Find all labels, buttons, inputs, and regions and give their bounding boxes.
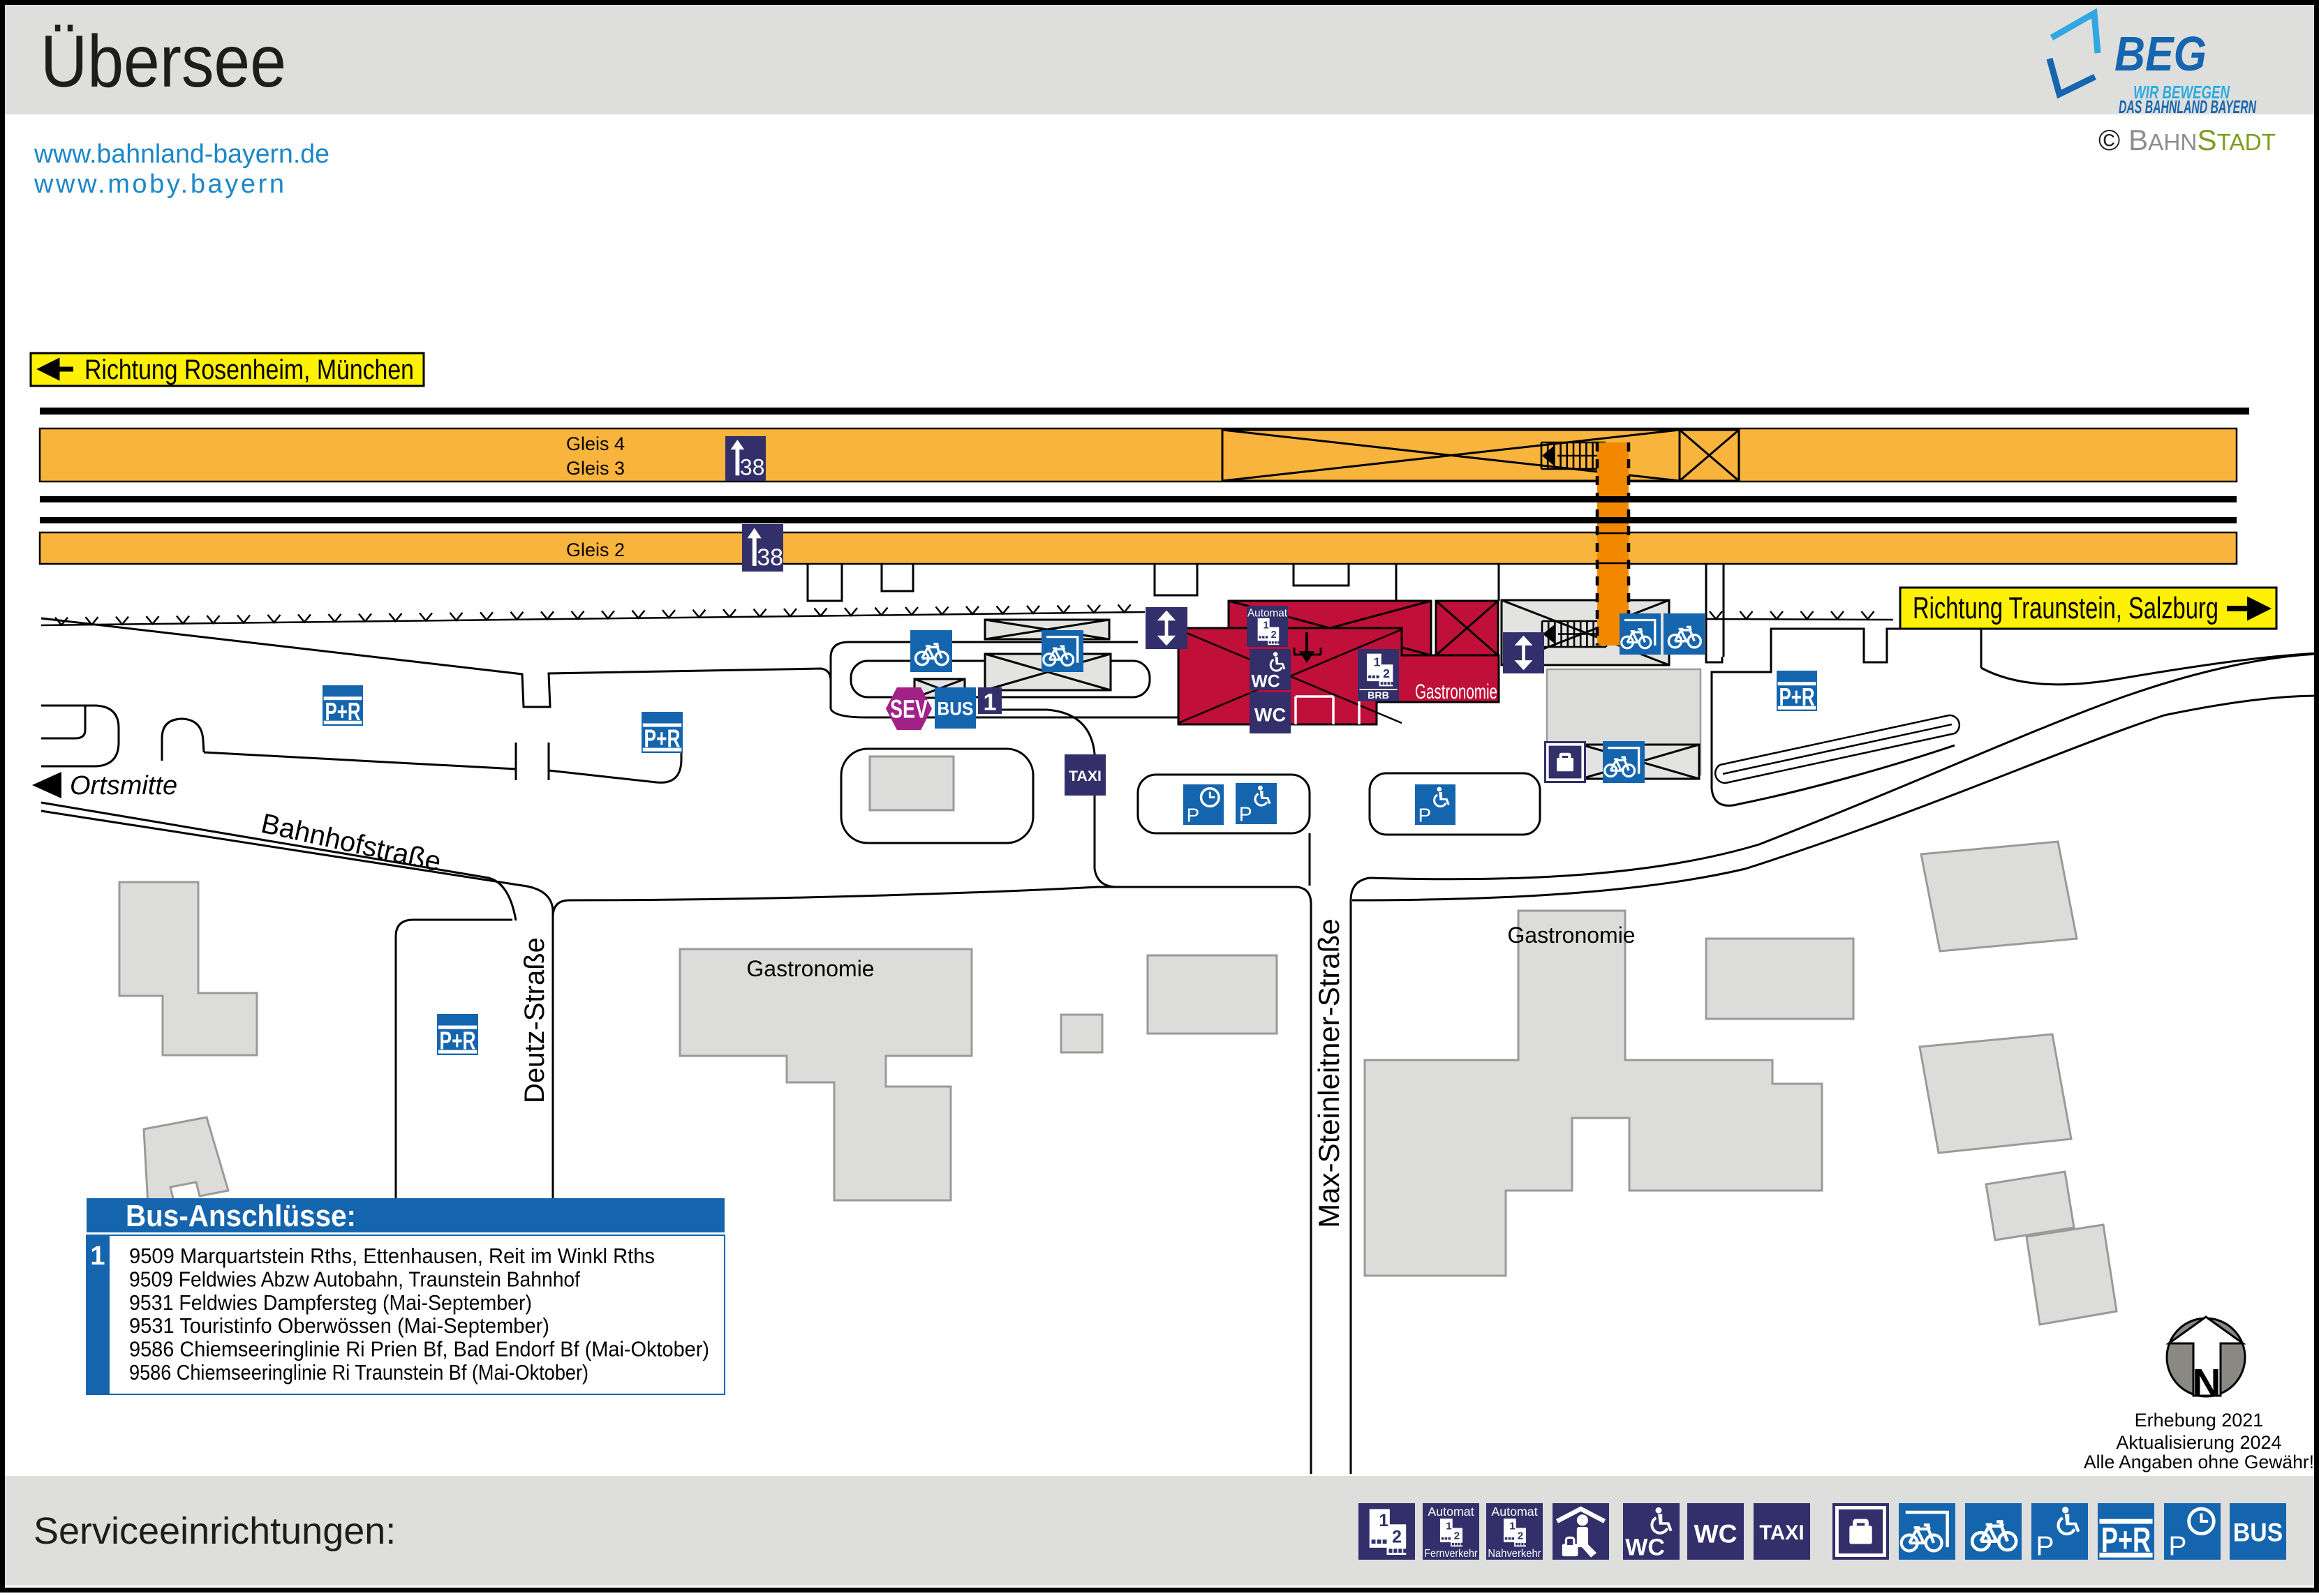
svg-text:P: P <box>1187 804 1200 826</box>
svg-text:2: 2 <box>1454 1530 1460 1542</box>
svg-text:Automat: Automat <box>1428 1505 1474 1519</box>
svg-text:1: 1 <box>1509 1520 1515 1532</box>
svg-text:WC: WC <box>1694 1519 1737 1549</box>
svg-text:© BAHNSTADT: © BAHNSTADT <box>2098 124 2276 156</box>
svg-text:SEV: SEV <box>890 694 928 723</box>
svg-text:P+R: P+R <box>644 724 681 753</box>
svg-text:WC: WC <box>1254 703 1286 725</box>
svg-text:BUS: BUS <box>2233 1517 2283 1546</box>
svg-text:Deutz-Straße: Deutz-Straße <box>519 937 550 1103</box>
svg-text:Nahverkehr: Nahverkehr <box>1488 1548 1541 1560</box>
svg-text:P+R: P+R <box>440 1027 476 1055</box>
svg-text:2: 2 <box>1383 666 1390 680</box>
svg-text:Gastronomie: Gastronomie <box>1415 680 1497 703</box>
svg-text:1: 1 <box>1264 620 1269 631</box>
svg-text:1: 1 <box>983 689 996 715</box>
svg-text:WC: WC <box>1625 1535 1665 1561</box>
svg-text:N: N <box>2192 1361 2221 1405</box>
svg-text:P: P <box>1239 803 1252 826</box>
svg-text:Gastronomie: Gastronomie <box>746 956 874 981</box>
svg-text:Gleis 4: Gleis 4 <box>566 433 625 454</box>
svg-text:TAXI: TAXI <box>1069 768 1102 784</box>
svg-text:P+R: P+R <box>1779 683 1814 711</box>
svg-text:P: P <box>2036 1532 2054 1562</box>
svg-text:9586 Chiemseeringlinie Ri Trau: 9586 Chiemseeringlinie Ri Traunstein Bf … <box>129 1360 588 1385</box>
svg-text:2: 2 <box>1392 1528 1402 1547</box>
svg-text:P: P <box>2168 1532 2186 1562</box>
svg-text:Fernverkehr: Fernverkehr <box>1424 1548 1477 1560</box>
svg-text:Serviceeinrichtungen:: Serviceeinrichtungen: <box>34 1510 396 1552</box>
svg-text:P+R: P+R <box>2101 1521 2151 1560</box>
svg-text:WC: WC <box>1251 672 1280 691</box>
svg-text:Automat: Automat <box>1247 607 1288 619</box>
svg-text:1: 1 <box>1379 1512 1388 1530</box>
svg-text:Automat: Automat <box>1491 1505 1537 1519</box>
svg-text:Bus-Anschlüsse:: Bus-Anschlüsse: <box>126 1199 356 1233</box>
svg-text:Ortsmitte: Ortsmitte <box>70 771 177 800</box>
svg-text:Erhebung 2021: Erhebung 2021 <box>2135 1410 2264 1431</box>
svg-text:Aktualisierung 2024: Aktualisierung 2024 <box>2116 1432 2281 1453</box>
svg-text:BRB: BRB <box>1368 690 1389 701</box>
svg-text:Max-Steinleitner-Straße: Max-Steinleitner-Straße <box>1312 918 1345 1228</box>
svg-text:BEG: BEG <box>2114 27 2207 81</box>
svg-text:38: 38 <box>740 455 765 480</box>
svg-text:Gleis 3: Gleis 3 <box>566 458 625 479</box>
svg-text:2: 2 <box>1518 1530 1523 1542</box>
svg-text:Übersee: Übersee <box>40 20 286 103</box>
svg-text:P+R: P+R <box>325 697 360 726</box>
svg-text:1: 1 <box>1374 655 1381 669</box>
svg-text:www.moby.bayern: www.moby.bayern <box>34 170 284 199</box>
svg-text:Richtung Rosenheim, München: Richtung Rosenheim, München <box>84 355 414 385</box>
svg-text:Gastronomie: Gastronomie <box>1507 923 1635 948</box>
svg-text:www.bahnland-bayern.de: www.bahnland-bayern.de <box>34 140 329 169</box>
svg-text:DAS BAHNLAND BAYERN: DAS BAHNLAND BAYERN <box>2119 96 2257 117</box>
svg-text:2: 2 <box>1271 629 1277 641</box>
svg-text:BUS: BUS <box>938 698 974 719</box>
svg-text:9509 Feldwies Abzw Autobahn, T: 9509 Feldwies Abzw Autobahn, Traunstein … <box>129 1267 580 1291</box>
svg-text:9531 Feldwies Dampfersteg (Mai: 9531 Feldwies Dampfersteg (Mai-September… <box>129 1290 532 1315</box>
svg-text:9586 Chiemseeringlinie Ri Prie: 9586 Chiemseeringlinie Ri Prien Bf, Bad … <box>129 1337 709 1362</box>
svg-text:P: P <box>1418 804 1432 826</box>
svg-text:1: 1 <box>90 1241 105 1271</box>
svg-text:9531 Touristinfo Oberwössen (M: 9531 Touristinfo Oberwössen (Mai-Septemb… <box>129 1313 549 1338</box>
svg-text:38: 38 <box>757 544 783 571</box>
svg-text:1: 1 <box>1446 1520 1451 1532</box>
svg-text:TAXI: TAXI <box>1759 1522 1804 1544</box>
svg-text:Gleis 2: Gleis 2 <box>566 539 625 560</box>
svg-text:Richtung Traunstein, Salzburg: Richtung Traunstein, Salzburg <box>1913 591 2218 625</box>
svg-text:9509 Marquartstein Rths, Etten: 9509 Marquartstein Rths, Ettenhausen, Re… <box>129 1244 655 1268</box>
svg-text:Alle Angaben ohne Gewähr!: Alle Angaben ohne Gewähr! <box>2084 1452 2314 1472</box>
